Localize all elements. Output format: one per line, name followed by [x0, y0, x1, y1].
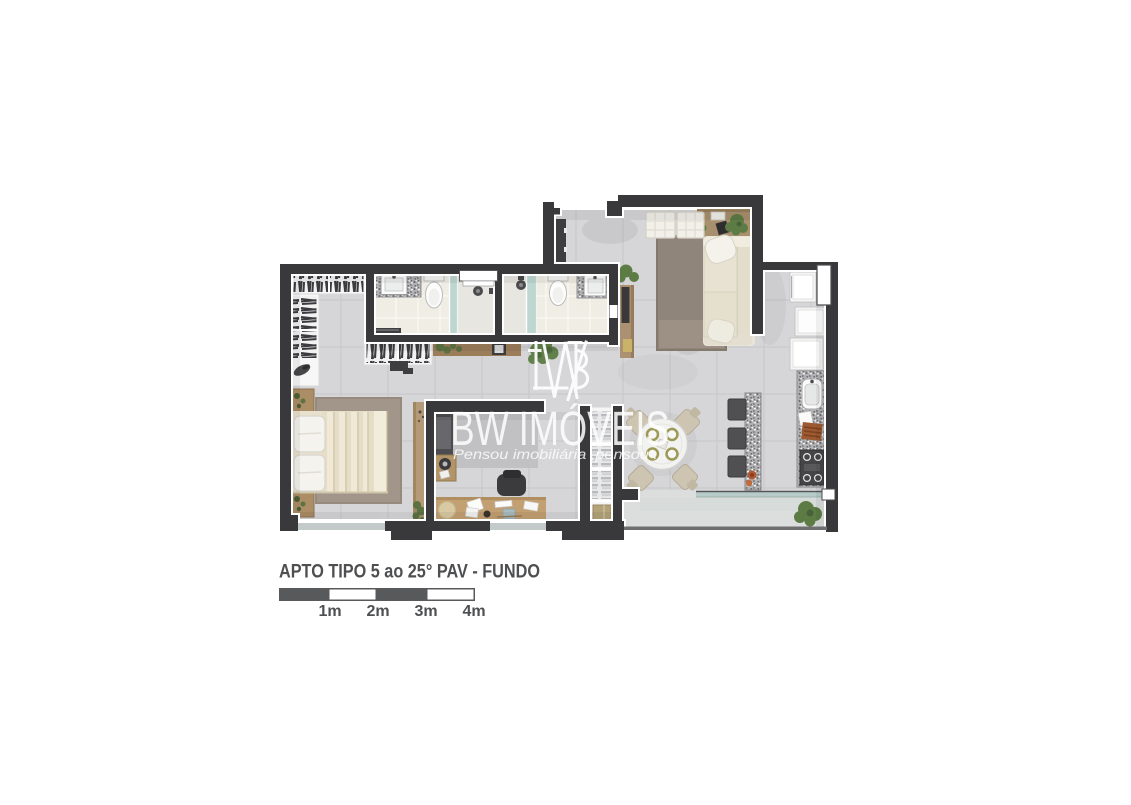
- svg-text:2m: 2m: [366, 603, 389, 620]
- svg-text:4m: 4m: [462, 603, 485, 620]
- svg-text:3m: 3m: [414, 603, 437, 620]
- svg-text:Pensou imobiliária ,pensou ...: Pensou imobiliária ,pensou ...: [453, 447, 667, 462]
- svg-text:APTO TIPO 5 ao 25° PAV - FUNDO: APTO TIPO 5 ao 25° PAV - FUNDO: [279, 562, 540, 583]
- svg-text:1m: 1m: [318, 603, 341, 620]
